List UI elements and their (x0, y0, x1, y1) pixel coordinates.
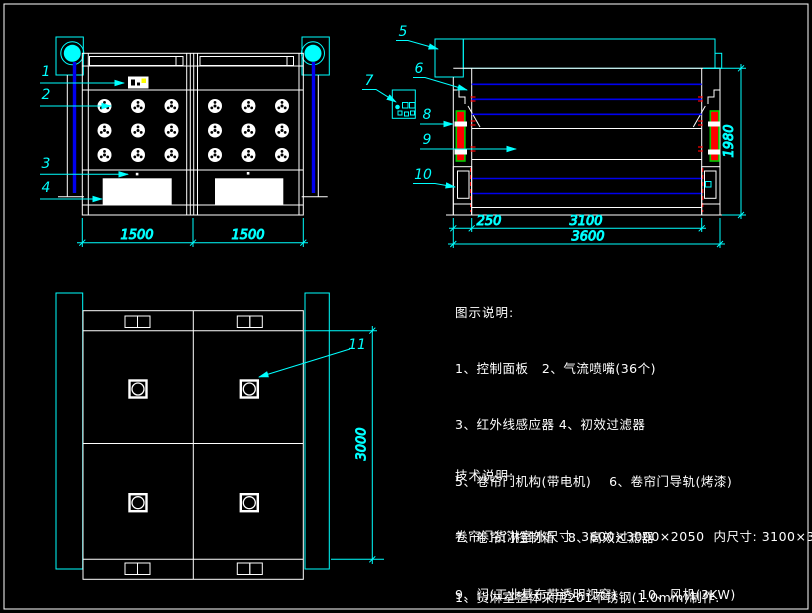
side-view: 5 6 7 8 9 10 250 3100 360 (362, 24, 746, 248)
callout-2: 2 (42, 87, 51, 103)
dim-3100: 3100 (569, 214, 602, 229)
fan-box-left (453, 167, 471, 215)
dim-1980: 1980 (722, 124, 737, 157)
hepa-filter-left (455, 111, 468, 161)
primary-filter-right (215, 178, 283, 205)
plan-view: 11 3000 (56, 293, 384, 579)
callout-1: 1 (42, 64, 51, 80)
technical-notes: 技术说明: 卷帘门货淋室外尺寸: 3600×3000×2050 内尺寸: 310… (455, 426, 812, 613)
front-dimension: 1500 1500 (77, 218, 308, 247)
dim-3600: 3600 (571, 230, 604, 245)
rail-column-left (58, 75, 84, 197)
roller-housing-left (56, 37, 84, 75)
hepa-filter-right (708, 111, 721, 161)
roller-housing-right (302, 37, 330, 75)
side-dimensions-bottom: 250 3100 3600 (448, 214, 725, 248)
plan-dimension: 3000 (304, 326, 384, 564)
side-dimension-height: 1980 (703, 64, 746, 219)
callout-10: 10 (414, 167, 432, 183)
plan-callout: 11 (259, 337, 366, 377)
fan-box-right (702, 167, 720, 215)
ir-sensor-right (247, 172, 250, 175)
callout-9: 9 (423, 132, 432, 148)
ir-sensor-left (136, 173, 139, 176)
dim-front-left: 1500 (120, 228, 153, 243)
tech-line: 1、货淋室整体采用201不锈钢(1.0mm)制作. (455, 588, 812, 608)
callout-7: 7 (365, 73, 374, 89)
tech-title: 技术说明: (455, 466, 812, 486)
dim-front-right: 1500 (231, 228, 264, 243)
indicator-lamp (142, 79, 147, 84)
guide-rail-bar-left (56, 293, 83, 569)
callout-6: 6 (415, 61, 424, 77)
callout-5: 5 (399, 24, 408, 40)
guide-rail-bar-right (305, 293, 329, 569)
front-view: 1 2 3 4 1500 1500 (40, 37, 329, 247)
callout-4: 4 (42, 180, 51, 196)
tech-line: 卷帘门货淋室外尺寸: 3600×3000×2050 内尺寸: 3100×3000… (455, 527, 812, 547)
primary-filter-left (103, 178, 172, 205)
cad-drawing-canvas: 1 2 3 4 1500 1500 (0, 0, 812, 613)
door-slats (472, 84, 702, 193)
legend-title: 图示说明: (455, 304, 736, 323)
control-panel (128, 77, 149, 89)
dim-250: 250 (477, 214, 502, 229)
roller-mechanism-box (435, 39, 463, 77)
dim-3000: 3000 (355, 427, 370, 460)
callout-11: 11 (348, 337, 366, 353)
callout-3: 3 (42, 156, 51, 172)
fan-switch-mark (706, 182, 712, 188)
door-control-box (392, 90, 415, 118)
side-callouts: 5 6 7 8 9 10 (362, 24, 516, 187)
legend-line: 1、控制面板 2、气流喷嘴(36个) (455, 360, 736, 379)
callout-8: 8 (423, 107, 432, 123)
plan-body (83, 311, 303, 580)
top-beam (463, 39, 721, 68)
